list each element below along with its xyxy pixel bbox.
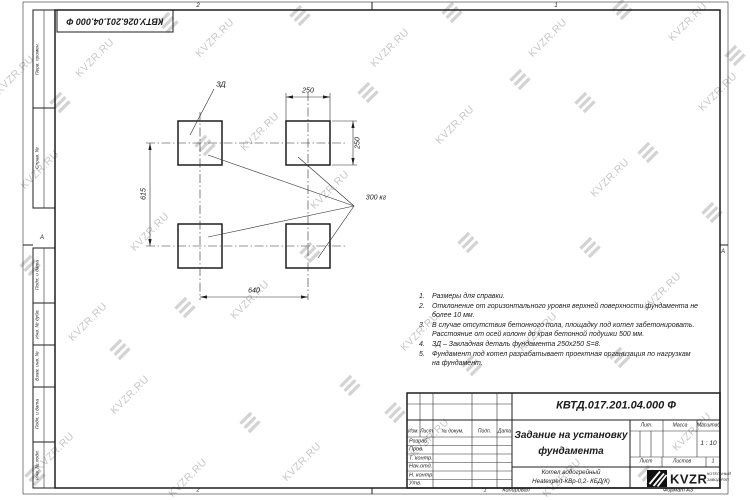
left-margin-boxes	[33, 10, 55, 488]
note-number: 4.	[416, 340, 432, 350]
note-text: Размеры для справки.	[432, 292, 700, 302]
note-text: Отклонение от горизонтального уровня вер…	[432, 302, 700, 321]
drawing-canvas	[0, 0, 750, 500]
note-item: 2. Отклонение от горизонтального уровня …	[416, 302, 700, 321]
note-number: 5.	[416, 350, 432, 369]
note-item: 5. Фундамент под котел разрабатывает про…	[416, 350, 700, 369]
note-number: 3.	[416, 321, 432, 340]
note-item: 4. ЗД – Закладная деталь фундамента 250х…	[416, 340, 700, 350]
note-item: 3. В случае отсутствия бетонного пола, п…	[416, 321, 700, 340]
drawing-frame	[55, 10, 720, 488]
note-item: 1. Размеры для справки.	[416, 292, 700, 302]
note-text: В случае отсутствия бетонного пола, площ…	[432, 321, 700, 340]
note-number: 1.	[416, 292, 432, 302]
note-number: 2.	[416, 302, 432, 321]
note-text: Фундамент под котел разрабатывает проект…	[432, 350, 700, 369]
rotated-stamp-box	[57, 10, 173, 32]
kvzr-logo-icon	[647, 470, 667, 487]
note-text: ЗД – Закладная деталь фундамента 250х250…	[432, 340, 700, 350]
centerlines	[146, 92, 345, 300]
notes-list: 1. Размеры для справки. 2. Отклонение от…	[416, 292, 700, 369]
drawing-sheet: KVZR.RUKVZR.RUKVZR.RUKVZR.RUKVZR.RUKVZR.…	[0, 0, 750, 500]
title-block-grid	[407, 393, 720, 488]
